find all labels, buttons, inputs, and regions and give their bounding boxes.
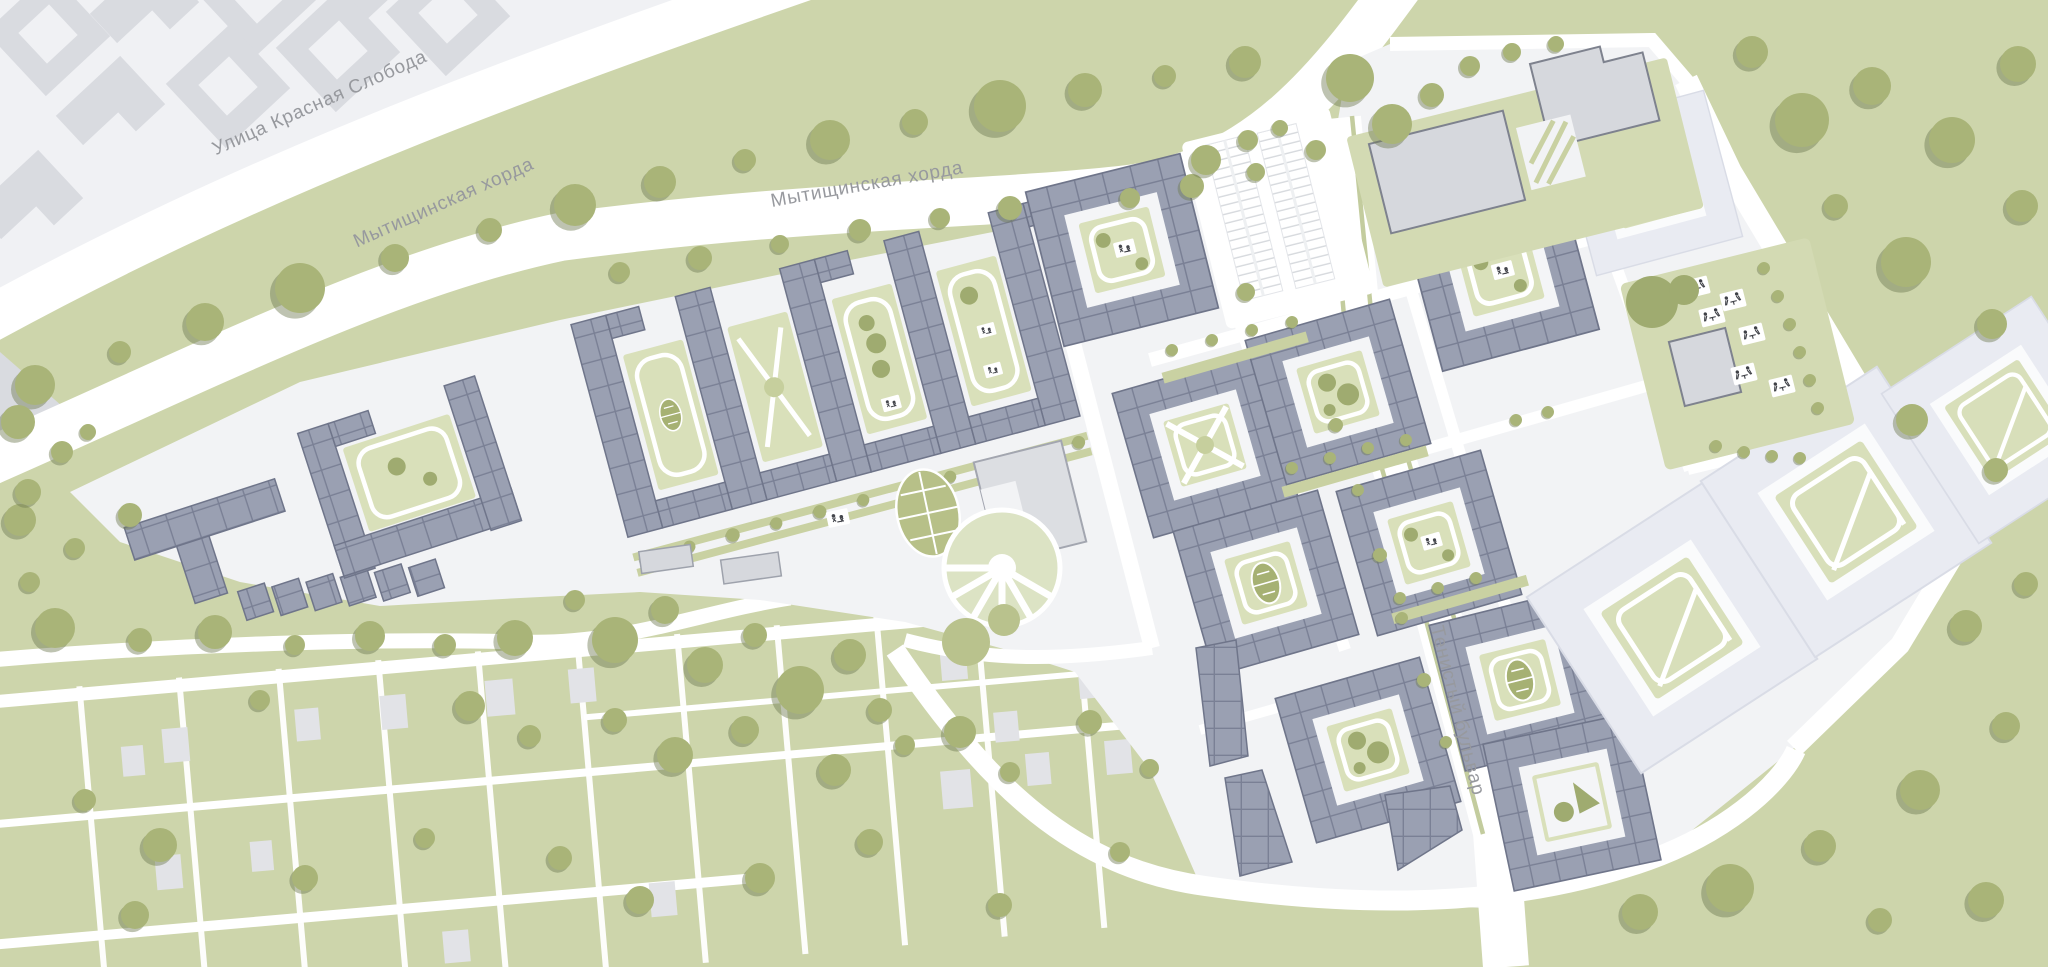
tree-icon xyxy=(1626,276,1678,328)
masterplan-canvas: Улица Красная Слобода Мытищинская хорда … xyxy=(0,0,2048,967)
tree-icon xyxy=(942,618,990,666)
tree-icon xyxy=(1669,275,1699,305)
tree-icon xyxy=(988,604,1020,636)
masterplan-map: Улица Красная Слобода Мытищинская хорда … xyxy=(0,0,2048,967)
